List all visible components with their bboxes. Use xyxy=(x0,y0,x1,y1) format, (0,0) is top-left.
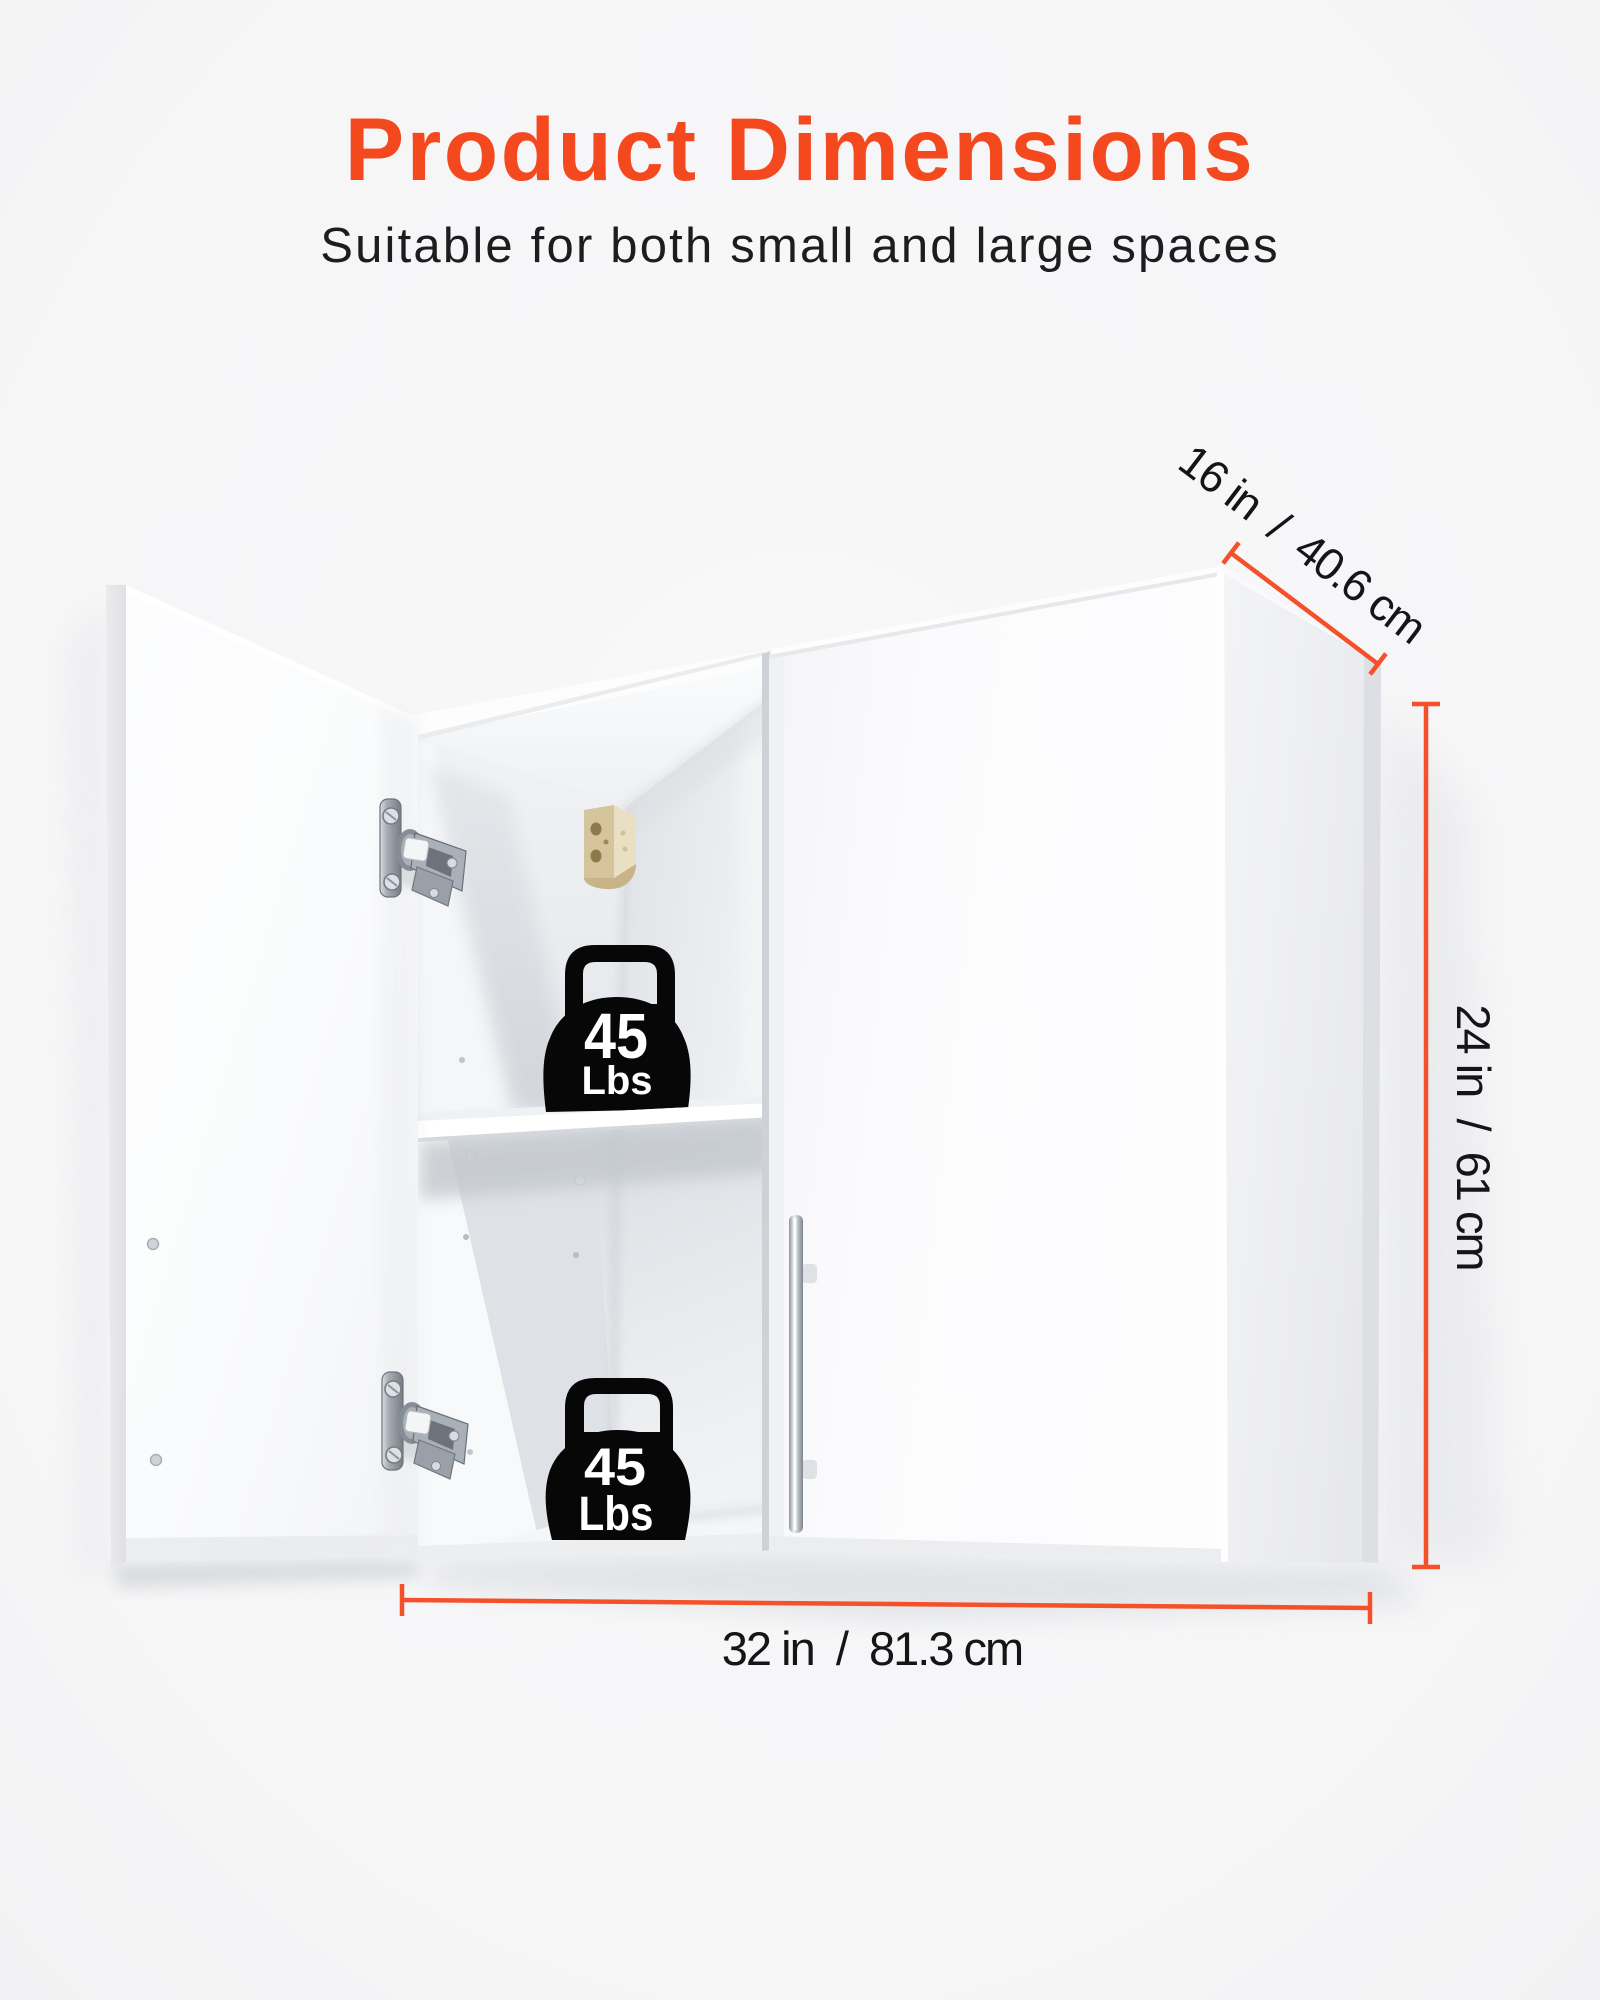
svg-text:24 in / 61 cm: 24 in / 61 cm xyxy=(1447,1004,1500,1269)
svg-text:32 in / 81.3 cm: 32 in / 81.3 cm xyxy=(722,1622,1022,1675)
svg-text:Suitable for both small and la: Suitable for both small and large spaces xyxy=(320,219,1280,273)
svg-text:Product Dimensions: Product Dimensions xyxy=(345,99,1255,199)
svg-text:Lbs: Lbs xyxy=(579,1488,654,1541)
svg-text:Lbs: Lbs xyxy=(581,1059,652,1103)
